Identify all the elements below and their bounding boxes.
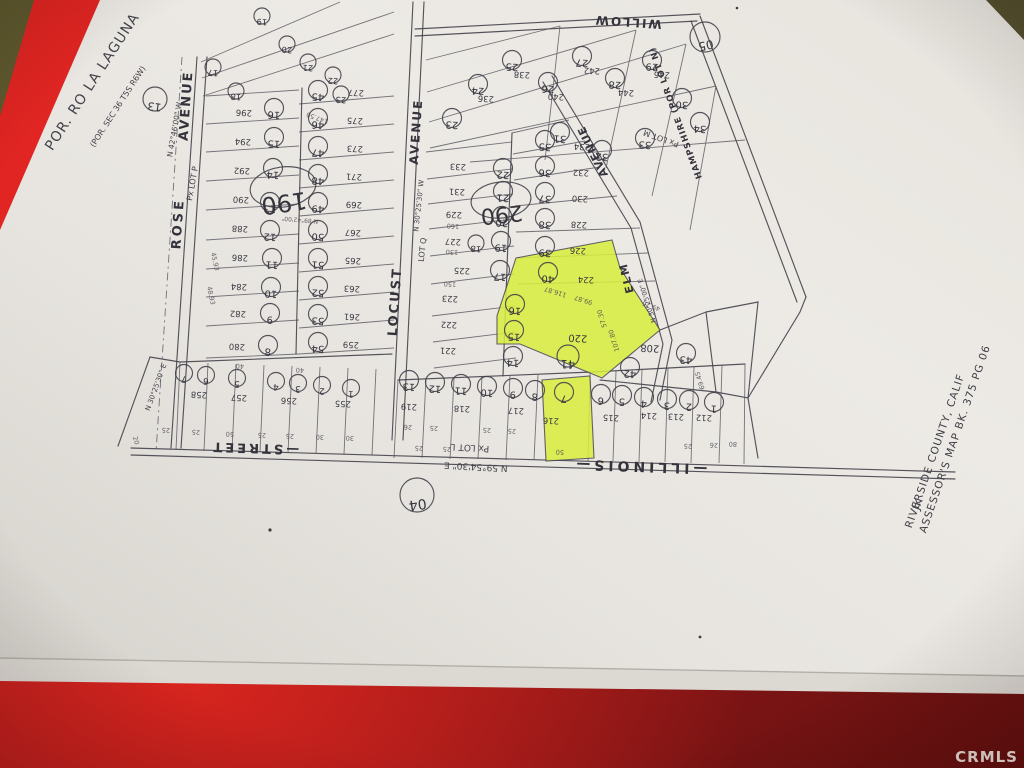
photo-vignette <box>0 0 1024 768</box>
parcel-map-scene: ROSEAVENUELOCUSTAVENUEWILLOWHAMPSHIRE (P… <box>0 0 1024 768</box>
crmls-watermark: CRMLS <box>955 748 1018 766</box>
photo-of-parcel-map: ROSEAVENUELOCUSTAVENUEWILLOWHAMPSHIRE (P… <box>0 0 1024 768</box>
